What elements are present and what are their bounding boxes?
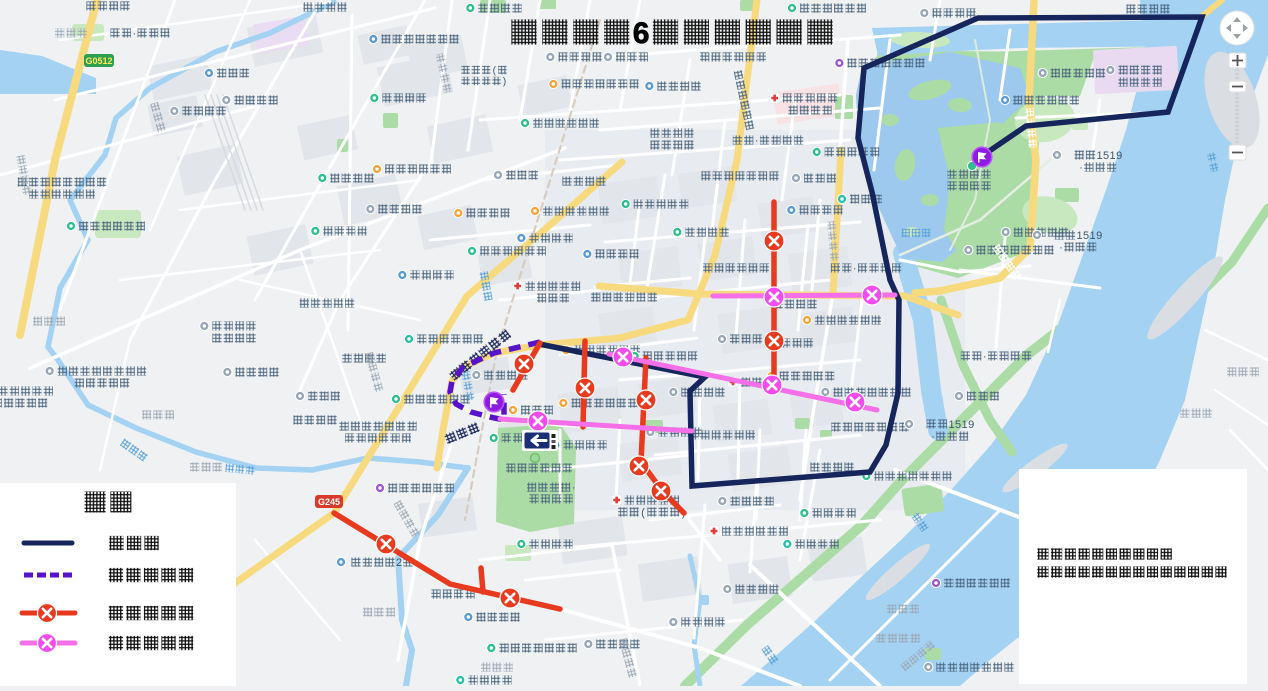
svg-text:·: · [1079,162,1083,174]
svg-text:9: 9 [968,419,974,431]
svg-text:·: · [983,351,987,363]
svg-text:·: · [755,135,759,147]
svg-text:·: · [1059,242,1063,254]
svg-text:1: 1 [1096,150,1102,162]
svg-text:1: 1 [1090,230,1096,242]
svg-text:·: · [132,28,136,40]
svg-text:·: · [853,263,857,275]
svg-text:9: 9 [1096,230,1102,242]
svg-text:·: · [931,431,935,443]
svg-text:1: 1 [948,419,954,431]
svg-text:): ) [503,77,506,88]
svg-text:1: 1 [1110,150,1116,162]
svg-text:9: 9 [1116,150,1122,162]
svg-text:5: 5 [955,419,961,431]
svg-text:1: 1 [1076,230,1082,242]
svg-text:G245: G245 [318,497,340,507]
svg-text:2: 2 [396,557,402,569]
svg-text:5: 5 [1103,150,1109,162]
svg-text:5: 5 [1083,230,1089,242]
svg-text:6: 6 [633,17,650,50]
svg-text:·: · [572,482,576,494]
svg-text:1: 1 [962,419,968,431]
svg-text:(: ( [641,507,645,519]
svg-text:G0512: G0512 [85,56,112,66]
